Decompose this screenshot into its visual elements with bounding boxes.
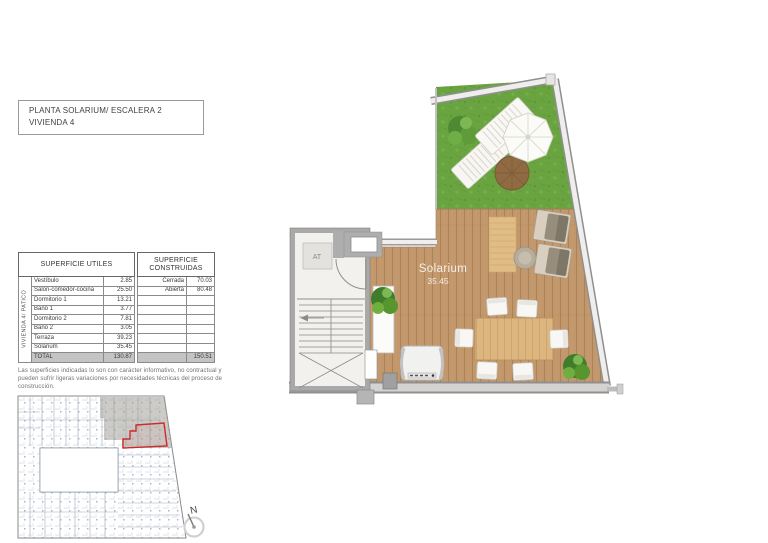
deck-mat [489, 217, 516, 272]
document-page: PLANTA SOLARIUM/ ESCALERA 2 VIVIENDA 4 S… [0, 0, 768, 543]
courtyard [40, 448, 118, 492]
room-label: Solarium [419, 263, 468, 275]
lounge-chair-icon [533, 210, 571, 245]
pillar [383, 373, 397, 389]
dining-chair-icon [455, 329, 474, 348]
dining-table-icon [475, 318, 553, 360]
elevator-label: AT [313, 254, 322, 261]
main-floorplan: AT [289, 74, 623, 404]
wall-chunk [333, 231, 344, 258]
round-table-icon [495, 156, 529, 190]
parasol-icon [503, 113, 553, 162]
floorplan-canvas: AT [0, 0, 768, 543]
dining-chair-icon [517, 299, 538, 317]
bbq-grill-icon [401, 346, 443, 380]
compass-center-dot [192, 525, 196, 529]
dining-chair-icon [513, 362, 534, 380]
window [351, 237, 377, 252]
room-area: 35.45 [427, 276, 449, 286]
north-compass: N [185, 505, 204, 537]
dining-chair-icon [486, 297, 507, 315]
north-label: N [189, 505, 198, 517]
dining-chair-icon [477, 361, 498, 379]
site-plan-thumbnail [18, 396, 186, 538]
wall-opening [365, 350, 377, 379]
lounge-chair-icon [534, 244, 572, 279]
pillar [357, 390, 374, 404]
dining-chair-icon [550, 330, 569, 349]
side-table-icon [514, 247, 536, 269]
